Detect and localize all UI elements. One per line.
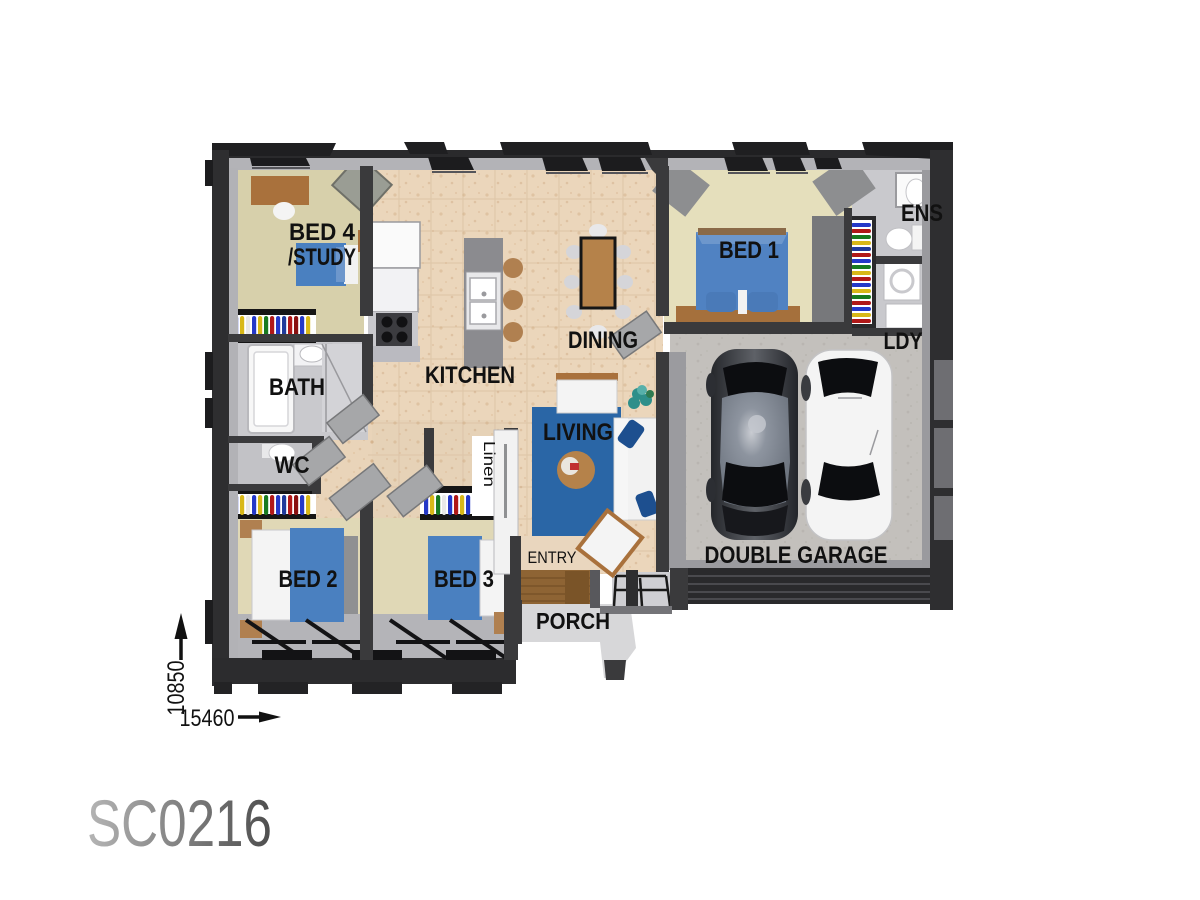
svg-text:15460: 15460 [180,705,235,732]
svg-text:PORCH: PORCH [536,608,610,634]
svg-text:BATH: BATH [269,374,325,401]
svg-text:BED 3: BED 3 [434,566,494,593]
svg-text:SC0216: SC0216 [87,786,272,860]
svg-text:DOUBLE GARAGE: DOUBLE GARAGE [705,542,888,569]
svg-text:WC: WC [275,452,310,479]
svg-text:DINING: DINING [568,327,638,354]
svg-text:LDY: LDY [884,328,923,355]
svg-text:ENTRY: ENTRY [528,548,577,567]
svg-text:/STUDY: /STUDY [288,244,356,271]
svg-text:BED 2: BED 2 [279,566,338,593]
svg-text:KITCHEN: KITCHEN [425,362,515,389]
svg-text:BED 1: BED 1 [719,237,779,264]
svg-text:LIVING: LIVING [543,419,613,446]
svg-text:BED 4: BED 4 [289,219,356,246]
svg-text:Linen: Linen [480,441,497,487]
svg-text:ENS: ENS [901,200,943,227]
